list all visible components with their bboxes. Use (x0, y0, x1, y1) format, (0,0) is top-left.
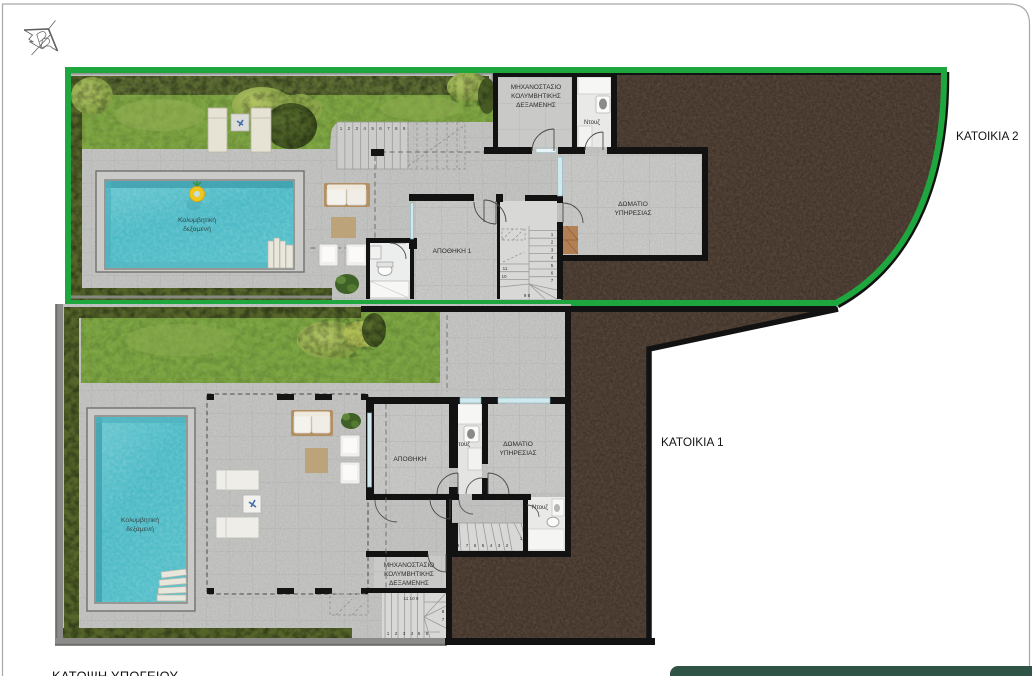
svg-text:6: 6 (474, 543, 477, 548)
svg-text:7: 7 (442, 617, 445, 622)
svg-text:1: 1 (340, 126, 343, 131)
svg-text:ΚΑΤΟΙΚΙΑ 2: ΚΑΤΟΙΚΙΑ 2 (956, 129, 1019, 143)
svg-text:ΚΑΤΟΙΚΙΑ 1: ΚΑΤΟΙΚΙΑ 1 (661, 435, 724, 449)
svg-text:11: 11 (503, 266, 508, 271)
svg-text:5: 5 (371, 126, 374, 131)
svg-text:ΔΩΜΑΤΙΟ: ΔΩΜΑΤΙΟ (618, 201, 648, 208)
svg-text:ΜΗΧΑΝΟΣΤΑΣΙΟ: ΜΗΧΑΝΟΣΤΑΣΙΟ (511, 84, 561, 91)
svg-text:ΥΠΗΡΕΣΙΑΣ: ΥΠΗΡΕΣΙΑΣ (499, 450, 536, 457)
svg-text:3: 3 (356, 126, 359, 131)
svg-text:ΔΕΞΑΜΕΝΗΣ: ΔΕΞΑΜΕΝΗΣ (389, 580, 429, 587)
svg-text:ΚΑΤΟΨΗ ΥΠΟΓΕΙΟΥ: ΚΑΤΟΨΗ ΥΠΟΓΕΙΟΥ (52, 669, 179, 676)
svg-text:3: 3 (551, 247, 554, 252)
svg-text:ΚΟΛΥΜΒΗΤΙΚΗΣ: ΚΟΛΥΜΒΗΤΙΚΗΣ (511, 93, 561, 100)
svg-text:6: 6 (379, 126, 382, 131)
svg-text:3: 3 (403, 631, 406, 636)
svg-text:1: 1 (551, 232, 554, 237)
svg-text:ΑΠΟΘΗΚΗ: ΑΠΟΘΗΚΗ (393, 456, 427, 463)
svg-text:Ντουζ: Ντουζ (584, 120, 600, 126)
svg-text:4: 4 (411, 631, 414, 636)
svg-text:1: 1 (520, 536, 523, 541)
svg-text:ΔΕΞΑΜΕΝΗΣ: ΔΕΞΑΜΕΝΗΣ (516, 102, 556, 109)
svg-text:ΥΠΗΡΕΣΙΑΣ: ΥΠΗΡΕΣΙΑΣ (614, 210, 651, 217)
svg-text:4: 4 (363, 126, 366, 131)
svg-text:ΜΗΧΑΝΟΣΤΑΣΙΟ: ΜΗΧΑΝΟΣΤΑΣΙΟ (384, 562, 434, 569)
svg-text:Κολυμβητική: Κολυμβητική (121, 517, 159, 524)
svg-text:2: 2 (551, 240, 554, 245)
svg-text:2: 2 (506, 543, 509, 548)
svg-text:6: 6 (551, 271, 554, 276)
svg-text:ΑΠΟΘΗΚΗ 1: ΑΠΟΘΗΚΗ 1 (433, 248, 472, 255)
svg-text:δεξαμενή: δεξαμενή (183, 226, 211, 233)
svg-text:2: 2 (395, 631, 398, 636)
svg-text:δεξαμενή: δεξαμενή (126, 526, 154, 533)
svg-text:4: 4 (551, 255, 554, 260)
svg-text:1: 1 (387, 631, 390, 636)
svg-text:10: 10 (501, 274, 507, 279)
svg-text:ΔΩΜΑΤΙΟ: ΔΩΜΑΤΙΟ (503, 441, 533, 448)
svg-text:7: 7 (551, 278, 554, 283)
svg-text:7: 7 (387, 126, 390, 131)
svg-text:11 10 9: 11 10 9 (404, 596, 419, 601)
svg-text:5: 5 (482, 543, 485, 548)
svg-text:5: 5 (418, 631, 421, 636)
svg-text:9: 9 (403, 126, 406, 131)
svg-text:4: 4 (490, 543, 493, 548)
svg-text:3: 3 (498, 543, 501, 548)
svg-text:Κολυμβητική: Κολυμβητική (178, 217, 216, 224)
svg-text:ΚΟΛΥΜΒΗΤΙΚΗΣ: ΚΟΛΥΜΒΗΤΙΚΗΣ (384, 571, 434, 578)
svg-text:8: 8 (442, 609, 445, 614)
svg-text:9 8: 9 8 (524, 293, 531, 298)
svg-text:8: 8 (395, 126, 398, 131)
svg-text:5: 5 (551, 263, 554, 268)
svg-text:6: 6 (426, 631, 429, 636)
svg-text:2: 2 (348, 126, 351, 131)
svg-text:7: 7 (466, 543, 469, 548)
